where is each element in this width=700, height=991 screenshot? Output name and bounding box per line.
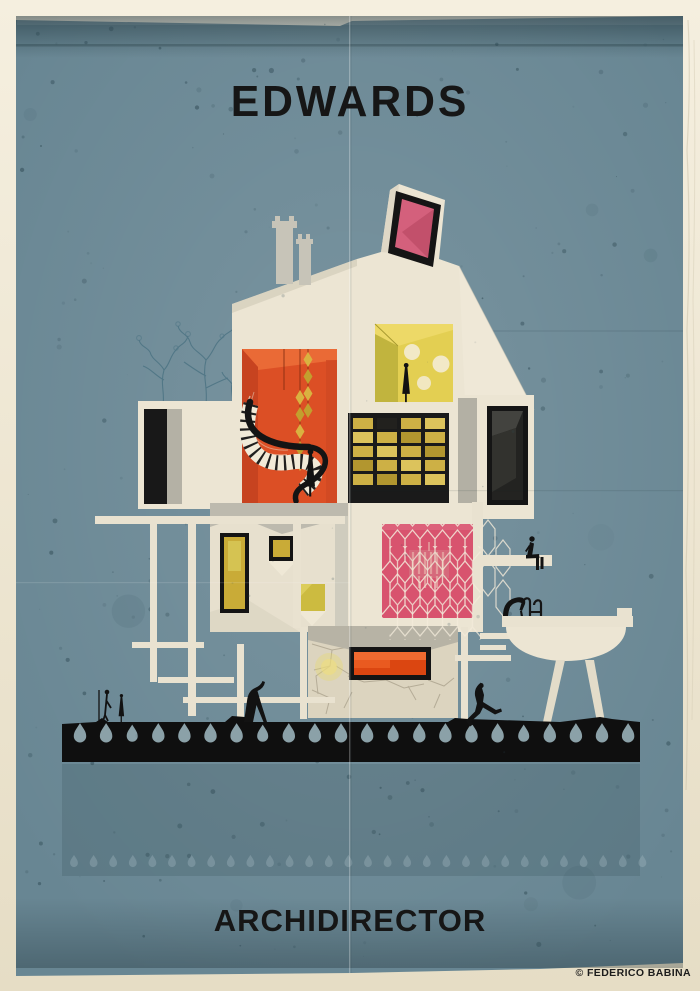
artist-credit: © FEDERICO BABINA [576, 967, 691, 979]
square-yellow-window [273, 540, 290, 557]
fireplace [349, 647, 431, 680]
grid-window [348, 413, 449, 503]
yellow-room [375, 324, 453, 402]
poster-illustration [0, 0, 700, 991]
series-title: ARCHIDIRECTOR [0, 903, 700, 939]
left-wing-window [144, 409, 167, 504]
film-director-name: EDWARDS [11, 77, 690, 127]
orange-stair-room [242, 349, 337, 517]
archidirector-poster: EDWARDS ARCHIDIRECTOR © FEDERICO BABINA [0, 0, 700, 991]
pink-pattern-room [382, 524, 481, 640]
